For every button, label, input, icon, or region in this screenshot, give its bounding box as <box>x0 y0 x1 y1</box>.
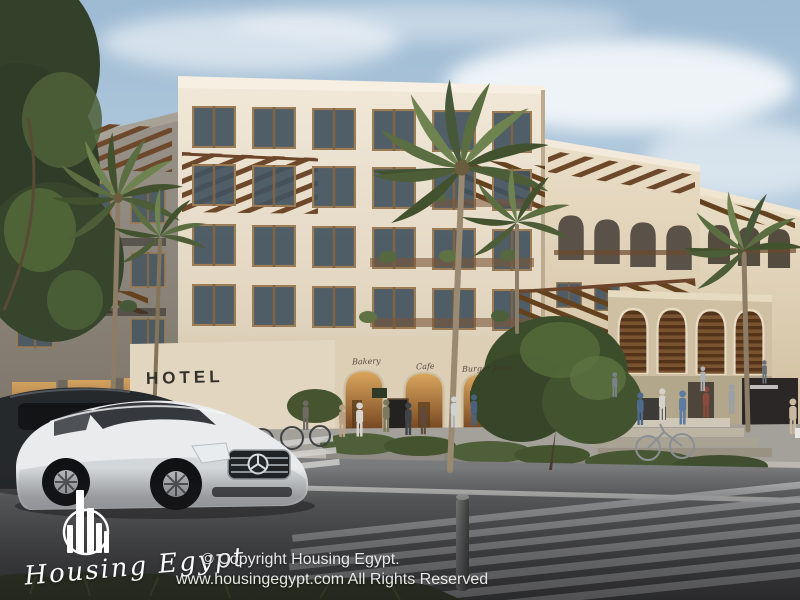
copyright-line2: www.housingegypt.com All Rights Reserved <box>176 570 516 590</box>
shrub <box>287 389 343 423</box>
hotel-sign: HOTEL <box>146 367 224 389</box>
shopping-bag <box>795 428 800 438</box>
burger-joint-sign: Burger Joint <box>462 363 512 374</box>
architectural-rendering: HOTEL Bakery Cafe Burger Joint Housing E… <box>0 0 800 600</box>
hanging-sign <box>372 388 387 398</box>
cafe-sign: Cafe <box>416 362 435 372</box>
copyright-block: © Copyright Housing Egypt. www.housingeg… <box>176 550 516 591</box>
copyright-line1: © Copyright Housing Egypt. <box>176 550 516 570</box>
bakery-sign: Bakery <box>352 357 381 367</box>
